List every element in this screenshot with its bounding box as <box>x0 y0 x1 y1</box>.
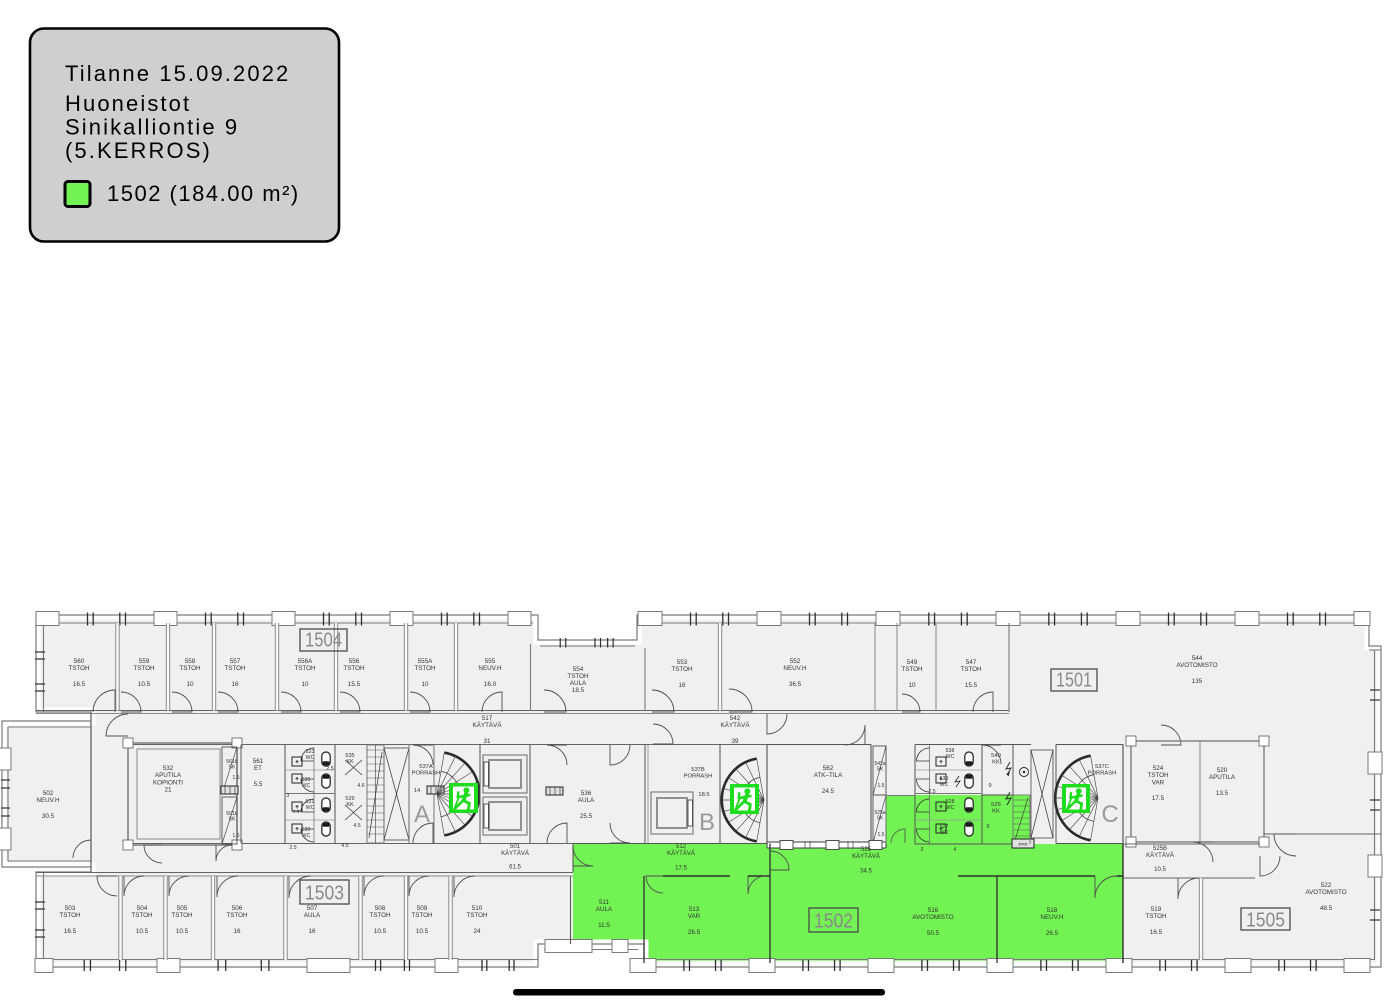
svg-text:14: 14 <box>414 788 421 794</box>
svg-text:526KK: 526KK <box>991 802 1001 815</box>
svg-text:1.5: 1.5 <box>878 783 885 789</box>
svg-text:1503: 1503 <box>305 883 344 905</box>
svg-text:1504: 1504 <box>305 630 342 652</box>
svg-text:3: 3 <box>921 847 924 853</box>
svg-text:1.5: 1.5 <box>232 775 239 781</box>
svg-text:9: 9 <box>988 783 991 789</box>
svg-text:B: B <box>699 809 715 836</box>
svg-text:WC: WC <box>940 782 949 788</box>
svg-text:Huoneistot: Huoneistot <box>65 91 191 116</box>
svg-text:4.5: 4.5 <box>341 843 348 849</box>
svg-text:1502: 1502 <box>814 911 853 933</box>
svg-text:2.5: 2.5 <box>326 766 333 772</box>
svg-text:3: 3 <box>287 793 290 799</box>
svg-text:1502 (184.00 m²): 1502 (184.00 m²) <box>107 181 300 206</box>
svg-text:4.6: 4.6 <box>357 783 364 789</box>
svg-text:PPP: PPP <box>1018 842 1027 847</box>
svg-text:Tilanne 15.09.2022: Tilanne 15.09.2022 <box>65 61 290 86</box>
svg-text:1505: 1505 <box>1246 910 1285 932</box>
svg-text:5: 5 <box>986 824 989 830</box>
svg-text:1501: 1501 <box>1056 670 1092 692</box>
svg-text:Sinikalliontie 9: Sinikalliontie 9 <box>65 115 239 140</box>
svg-text:WC: WC <box>306 805 315 811</box>
svg-text:(5.KERROS): (5.KERROS) <box>65 138 212 163</box>
svg-text:535KK: 535KK <box>345 753 354 765</box>
svg-text:C: C <box>1101 801 1118 828</box>
svg-text:WC: WC <box>946 754 955 760</box>
svg-text:2.5: 2.5 <box>289 845 296 851</box>
svg-text:1.5: 1.5 <box>878 832 885 838</box>
svg-text:WC: WC <box>946 805 955 811</box>
svg-text:18.5: 18.5 <box>698 792 709 798</box>
svg-text:WC: WC <box>306 755 315 761</box>
svg-text:4.5: 4.5 <box>293 809 300 815</box>
svg-text:1.5: 1.5 <box>232 833 239 839</box>
svg-text:4.5: 4.5 <box>353 823 360 829</box>
svg-text:540KK: 540KK <box>991 753 1001 766</box>
svg-text:A: A <box>414 801 430 828</box>
svg-text:WC: WC <box>940 830 949 836</box>
svg-text:4: 4 <box>954 847 957 853</box>
